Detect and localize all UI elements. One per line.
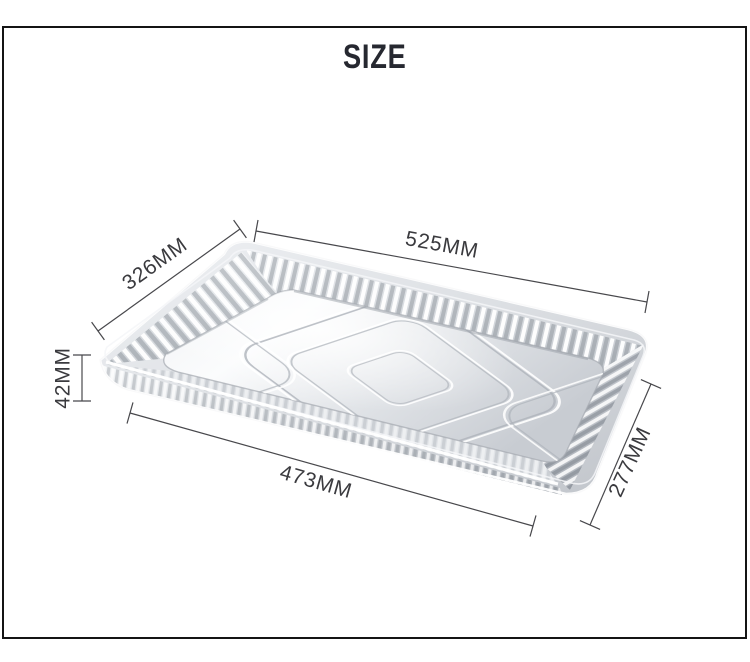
foil-tray-illustration	[0, 218, 750, 563]
dimension-label-top-rim-length: 525MM	[404, 227, 481, 263]
dimension-label-bottom-base-length: 473MM	[277, 461, 354, 503]
dimension-label-left-rim-width: 326MM	[118, 233, 192, 295]
dimension-depth: 42MM	[52, 347, 92, 409]
dimension-label-depth: 42MM	[52, 347, 75, 409]
dimension-diagram: 525MM 326MM 42MM 473MM 277MM	[0, 0, 750, 662]
